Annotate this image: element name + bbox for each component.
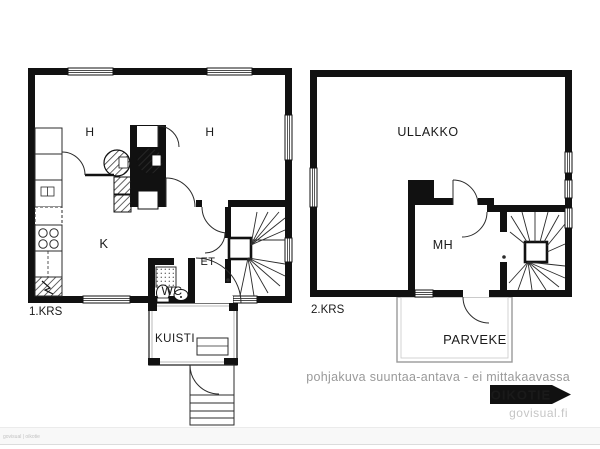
room-label-balcony: PARVEKE <box>443 332 507 347</box>
window <box>207 68 252 75</box>
floorplan-page: H H K ET WC KUISTI 1.KRS <box>0 0 600 449</box>
watermark-text: govisual | oikotie <box>3 434 40 440</box>
floorplan-canvas: H H K ET WC KUISTI 1.KRS <box>0 0 600 449</box>
window <box>310 168 317 207</box>
kitchen-fixtures <box>35 128 62 296</box>
window <box>83 296 130 303</box>
floor1-label: 1.KRS <box>29 306 63 318</box>
room-label-hall: ET <box>200 256 215 268</box>
room-label-attic: ULLAKKO <box>397 125 458 139</box>
room-label-bedroom: MH <box>433 238 453 252</box>
floor2-label: 2.KRS <box>311 304 345 316</box>
window <box>415 290 433 297</box>
room-label-porch: KUISTI <box>155 333 195 345</box>
hearth-hatch <box>114 177 131 194</box>
site-text: govisual.fi <box>509 406 568 420</box>
chimney-block <box>408 180 434 205</box>
window <box>233 296 257 303</box>
window <box>565 208 572 228</box>
room-label-h-left: H <box>85 125 94 139</box>
window <box>285 115 292 160</box>
window <box>68 68 113 75</box>
window <box>565 180 572 198</box>
balcony-door-gap <box>463 290 489 297</box>
oven <box>138 191 158 209</box>
hearth-hatch <box>114 195 131 212</box>
entrance-door-gap <box>195 296 233 303</box>
logo-text: OIKOTIE <box>491 388 551 403</box>
disclaimer-text: pohjakuva suuntaa-antava - ei mittakaava… <box>306 370 570 384</box>
footer-strip <box>0 428 600 444</box>
room-label-wc: WC <box>162 284 183 298</box>
floor2-walls <box>310 70 572 323</box>
window <box>565 152 572 173</box>
room-label-h-right: H <box>205 125 214 139</box>
room-label-kitchen: K <box>99 236 108 251</box>
window <box>285 238 292 262</box>
